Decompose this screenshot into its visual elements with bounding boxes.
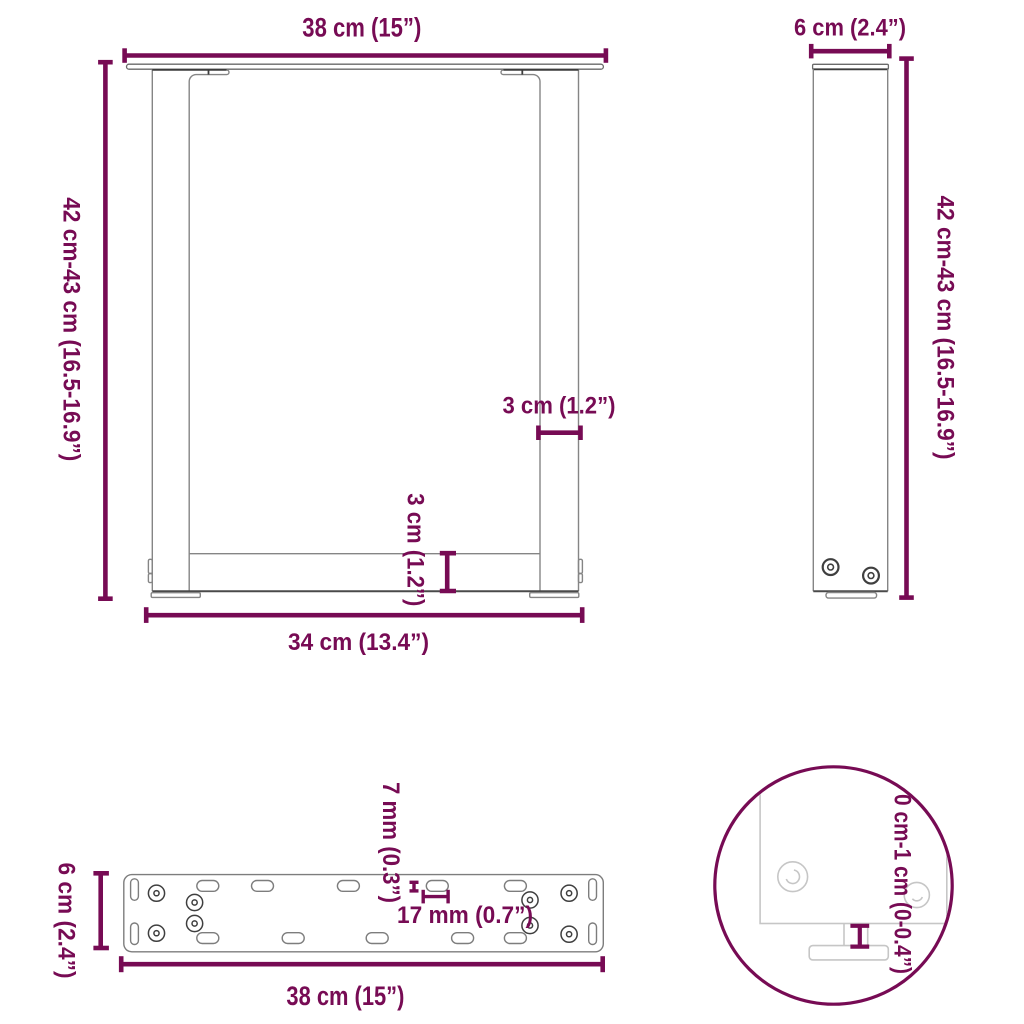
svg-text:3 cm (1.2”): 3 cm (1.2”) (503, 393, 616, 420)
svg-text:7 mm (0.3”): 7 mm (0.3”) (377, 782, 404, 903)
svg-text:42 cm-43 cm (16.5-16.9”): 42 cm-43 cm (16.5-16.9”) (58, 197, 85, 461)
svg-text:38 cm (15”): 38 cm (15”) (302, 12, 421, 42)
svg-text:6 cm (2.4”): 6 cm (2.4”) (53, 863, 80, 979)
svg-text:42 cm-43 cm (16.5-16.9”): 42 cm-43 cm (16.5-16.9”) (932, 196, 959, 460)
svg-text:38 cm (15”): 38 cm (15”) (286, 981, 404, 1011)
svg-text:3 cm (1.2”): 3 cm (1.2”) (402, 493, 429, 606)
svg-text:34 cm (13.4”): 34 cm (13.4”) (288, 629, 429, 656)
svg-text:0 cm-1 cm (0-0.4”): 0 cm-1 cm (0-0.4”) (888, 794, 915, 974)
svg-text:6 cm (2.4”): 6 cm (2.4”) (794, 14, 906, 41)
svg-text:17 mm (0.7”): 17 mm (0.7”) (397, 902, 533, 929)
